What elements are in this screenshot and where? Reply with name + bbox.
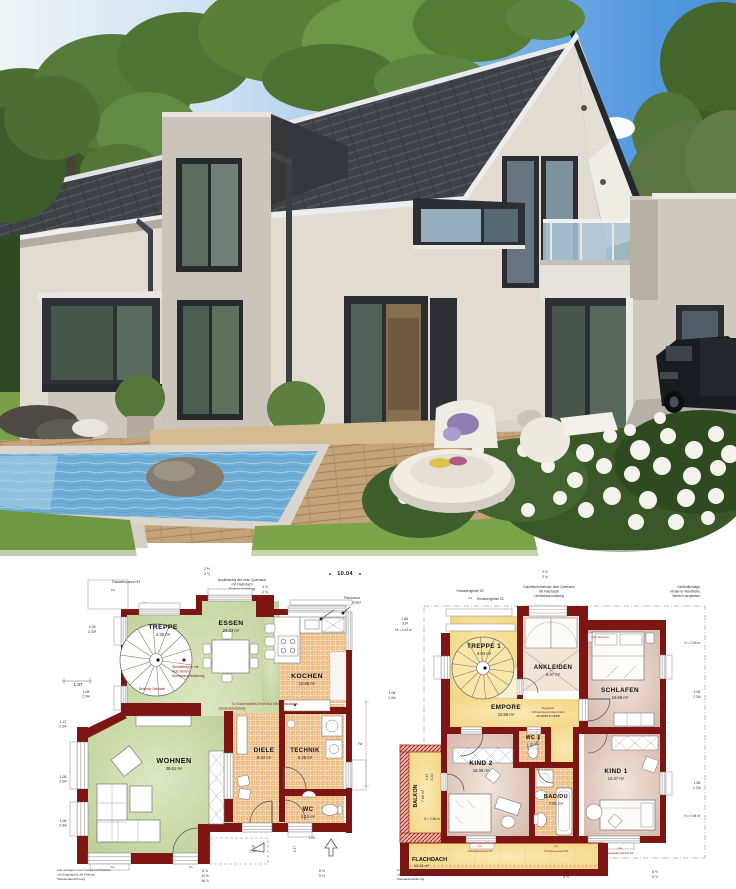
svg-text:4.04 m²: 4.04 m² [477,651,492,656]
svg-text:38.61 m²: 38.61 m² [166,766,183,771]
svg-text:1.08: 1.08 [389,691,396,695]
svg-text:KOCHEN: KOCHEN [291,673,323,680]
svg-text:6.45 m²: 6.45 m² [298,755,313,760]
svg-text:1.87: 1.87 [74,682,83,687]
svg-text:TREPPE 1: TREPPE 1 [467,643,501,650]
svg-text:FLACHDACH: FLACHDACH [412,857,447,863]
svg-text:3.5²: 3.5² [402,622,409,626]
svg-text:16.40 m²: 16.40 m² [473,768,490,773]
svg-text:2.13 m²: 2.13 m² [301,814,316,819]
svg-text:Panorama: Panorama [344,596,360,600]
svg-text:2.34²: 2.34² [82,695,91,699]
svg-text:M = 2.43 m: M = 2.43 m [395,628,412,632]
svg-text:10.04: 10.04 [337,571,353,577]
svg-text:2.24²: 2.24² [693,786,702,790]
svg-text:Sonderausstattung: Sonderausstattung [219,707,246,711]
svg-text:79: 79 [251,845,255,849]
svg-text:Fe: Fe [478,844,482,848]
svg-text:ESSEN: ESSEN [218,620,243,627]
svg-text:3 x Küchenzeile/U-Form inkl. E: 3 x Küchenzeile/U-Form inkl. Elektroinst… [232,702,299,706]
svg-text:16 ⅞: 16 ⅞ [201,879,209,883]
svg-text:4.30 m²: 4.30 m² [156,632,171,637]
svg-text:2.34²: 2.34² [388,696,397,700]
svg-text:Spindeltreppe mit: Spindeltreppe mit [172,665,198,669]
svg-text:2.34²: 2.34² [59,725,68,729]
svg-text:2.24²: 2.24² [430,773,434,780]
svg-text:Alle niedrigen unter Decke und: Alle niedrigen unter Decke und Hochkn. [57,868,112,872]
svg-text:16.69 m²: 16.69 m² [612,695,629,700]
svg-text:Setzholz-Geländer: Setzholz-Geländer [139,687,166,691]
svg-text:5 ⅛: 5 ⅛ [563,870,569,874]
svg-text:1.08: 1.08 [60,819,67,823]
svg-text:Bereich ausgebaut: Bereich ausgebaut [673,594,701,598]
svg-text:1.08: 1.08 [83,690,90,694]
svg-text:Ausklinkung der unts. Querhaus: Ausklinkung der unts. Querhaus [218,578,267,582]
svg-text:1.08: 1.08 [89,625,96,629]
svg-text:H = 2.03 m: H = 2.03 m [684,641,700,645]
svg-text:Fe: Fe [111,865,115,869]
svg-text:7.60 m²: 7.60 m² [421,789,425,802]
svg-text:H = 0.94 m: H = 0.94 m [684,814,700,818]
svg-text:1.61 m²: 1.61 m² [527,743,540,747]
svg-text:2.34²: 2.34² [88,630,97,634]
svg-text:ANKLEIDEN: ANKLEIDEN [534,665,573,671]
svg-text:WOHNEN: WOHNEN [156,756,191,765]
svg-text:1.58: 1.58 [694,781,701,785]
svg-text:Holz-Stufen: Holz-Stufen [172,670,190,674]
svg-text:3 ⅜: 3 ⅜ [262,585,268,589]
svg-text:Kombizargeänderung: Kombizargeänderung [172,674,205,678]
svg-text:Standardausführung: Standardausführung [57,877,85,881]
svg-text:1.37: 1.37 [293,846,297,852]
svg-text:14.47 m²: 14.47 m² [608,776,625,781]
svg-text:KIND 1: KIND 1 [604,768,627,775]
svg-text:2 ⅔: 2 ⅔ [542,570,548,574]
svg-text:Fa: Fa [111,588,115,592]
svg-text:5 ⅞: 5 ⅞ [652,875,658,879]
svg-text:10.88 m²: 10.88 m² [299,681,316,686]
svg-text:9 ½: 9 ½ [563,875,569,879]
svg-text:Ng Bankverbau: Ng Bankverbau [660,716,664,736]
svg-text:36.00/50.5 OKFB: 36.00/50.5 OKFB [536,714,559,718]
svg-text:2 ⅕: 2 ⅕ [204,567,210,571]
svg-text:1.08: 1.08 [694,690,701,694]
svg-text:KIND 2: KIND 2 [469,760,492,767]
svg-text:Kehlbalkenlage: Kehlbalkenlage [677,585,700,589]
svg-text:Fa: Fa [358,742,362,746]
svg-text:Zu 2. Drempel: Zu 2. Drempel [591,635,609,639]
svg-text:2 ⅛: 2 ⅛ [262,590,268,594]
svg-text:11 ½: 11 ½ [201,874,208,878]
svg-text:1.88: 1.88 [401,617,408,621]
svg-text:2 ¾: 2 ¾ [542,575,548,579]
svg-text:2.34²: 2.34² [59,780,68,784]
svg-text:Fe: Fe [618,846,622,850]
svg-text:7.81 m²: 7.81 m² [549,801,564,806]
svg-text:8 ½: 8 ½ [319,869,325,873]
svg-text:2.54²: 2.54² [249,850,256,854]
svg-text:mit Flachdach: mit Flachdach [231,583,252,587]
svg-text:1.00: 1.00 [309,836,315,840]
svg-text:9.34 m²: 9.34 m² [257,755,272,760]
svg-text:EMPORE: EMPORE [491,704,521,711]
svg-text:Moderne Wandhöhe: Moderne Wandhöhe [670,590,700,594]
svg-text:Standardausführung: Standardausführung [397,877,425,881]
svg-text:2 ¾: 2 ¾ [204,572,210,576]
svg-text:WC 1: WC 1 [526,735,541,741]
svg-text:24.33 m²: 24.33 m² [223,628,240,633]
svg-text:Fassade-panel 06: Fassade-panel 06 [468,849,492,853]
svg-text:5 ⅛: 5 ⅛ [202,869,208,873]
svg-text:BALKON: BALKON [413,784,419,807]
svg-text:H = 2.66 m: H = 2.66 m [424,817,440,821]
svg-text:Fe: Fe [554,844,558,848]
svg-text:SCHLAFEN: SCHLAFEN [601,687,639,694]
svg-text:BAD/DU: BAD/DU [544,794,568,800]
svg-text:Fassadenpaneel 53: Fassadenpaneel 53 [112,580,140,584]
svg-text:10.56 m²: 10.56 m² [498,712,515,717]
svg-text:DIELE: DIELE [254,747,275,754]
svg-text:Terrassengiebel 53: Terrassengiebel 53 [477,597,504,601]
svg-text:2.13: 2.13 [425,774,429,780]
svg-text:2.34²: 2.34² [693,695,702,699]
svg-text:Angaben über Farbumfang und So: Angaben über Farbumfang und Sondermodell… [397,868,462,872]
svg-text:Fa: Fa [468,596,472,600]
svg-text:TECHNIK: TECHNIK [290,748,320,754]
svg-text:9 ½: 9 ½ [319,874,325,878]
svg-text:Fe: Fe [189,865,193,869]
svg-text:Lichtbandanordnung: Lichtbandanordnung [534,594,564,598]
svg-text:Dachflächenfenster über Querha: Dachflächenfenster über Querhaus [523,585,575,589]
svg-text:mit Flachdach: mit Flachdach [539,590,560,594]
svg-text:Fassadenpaneel 53: Fassadenpaneel 53 [607,851,634,855]
svg-text:2.34²: 2.34² [59,824,68,828]
svg-text:8 ½: 8 ½ [652,870,658,874]
svg-text:mit Eingangstür als Füllung: mit Eingangstür als Füllung [57,873,95,877]
svg-text:6.97 m²: 6.97 m² [546,672,561,677]
svg-text:Terrasse-panel 06: Terrasse-panel 06 [544,849,568,853]
svg-text:mit Eingangsgiebel als Prüfung: mit Eingangsgiebel als Prüfung [397,873,439,877]
svg-text:1.08: 1.08 [60,775,67,779]
svg-text:1.12: 1.12 [60,720,67,724]
svg-text:WC: WC [303,807,314,813]
svg-text:TREPPE: TREPPE [148,624,178,631]
svg-text:Fassadengiebel 53: Fassadengiebel 53 [457,589,484,593]
